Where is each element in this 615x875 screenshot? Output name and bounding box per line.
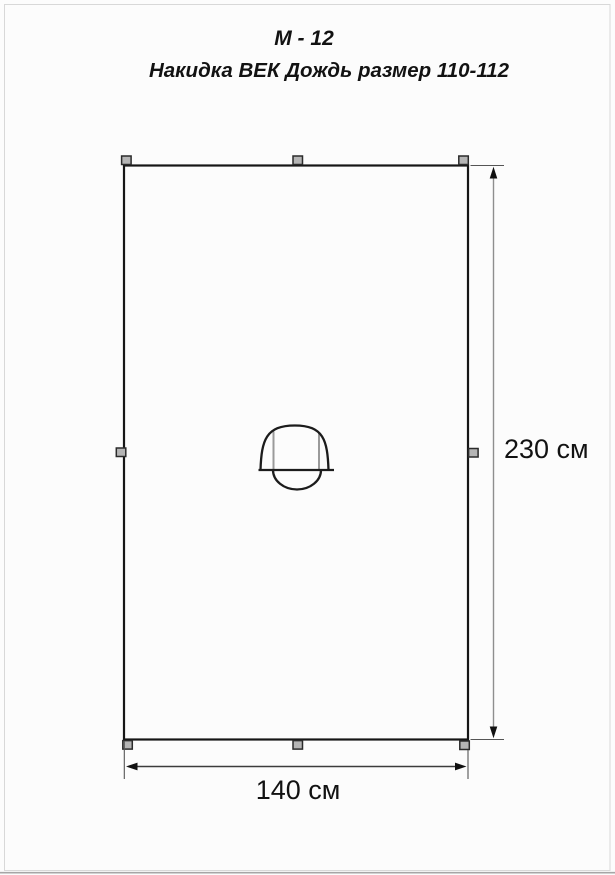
marker-middle-left — [116, 448, 126, 457]
arrow-left-icon — [126, 763, 138, 771]
product-title: Накидка ВЕК Дождь размер 110-112 — [149, 59, 510, 82]
hood-opening — [259, 426, 335, 490]
model-title: М - 12 — [274, 27, 334, 50]
width-dimension-label: 140 см — [256, 775, 341, 805]
pattern-drawing: М - 12 Накидка ВЕК Дождь размер 110-112 — [0, 0, 615, 875]
marker-bottom-right — [460, 741, 470, 750]
arrow-down-icon — [490, 727, 498, 739]
width-dimension: 140 см — [124, 741, 468, 805]
hood-neck-curve — [273, 470, 321, 490]
arrow-right-icon — [455, 763, 467, 771]
marker-bottom-center — [293, 741, 303, 750]
marker-top-left — [122, 156, 132, 165]
arrow-up-icon — [490, 167, 498, 179]
marker-top-center — [293, 156, 303, 165]
height-dimension-label: 230 см — [504, 434, 589, 464]
cape-panel-outline — [124, 166, 468, 740]
attachment-markers — [116, 156, 478, 750]
marker-top-right — [459, 156, 469, 165]
height-dimension: 230 см — [471, 166, 589, 740]
pattern-sheet: М - 12 Накидка ВЕК Дождь размер 110-112 — [0, 0, 615, 875]
marker-middle-right — [469, 449, 479, 458]
